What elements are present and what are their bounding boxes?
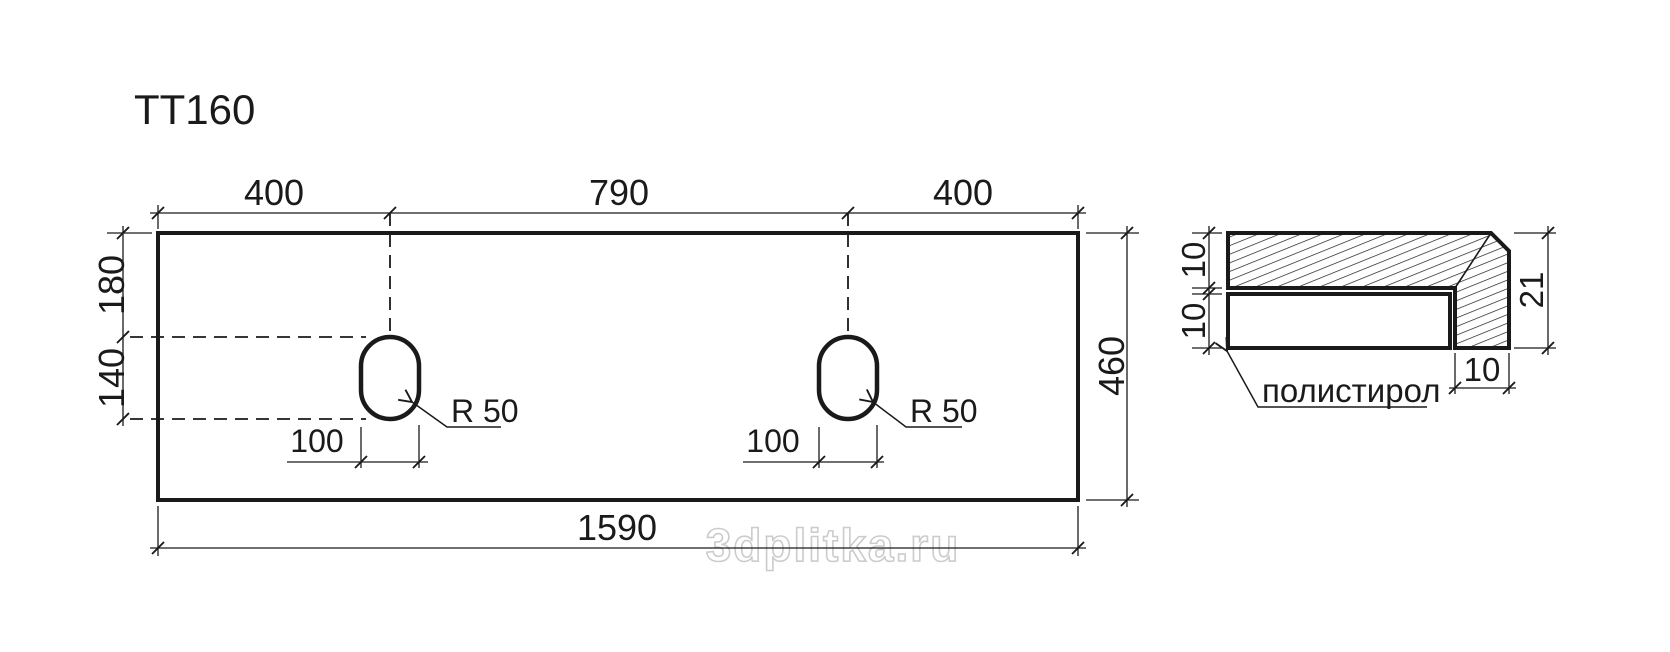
section-edge-width-label: 10 [1464, 351, 1501, 388]
drawing-page: 3dplitka.ru TT160 400 790 400 180 140 [0, 0, 1670, 652]
technical-drawing: 3dplitka.ru TT160 400 790 400 180 140 [0, 0, 1670, 652]
section-dim-bottom: 10 [1449, 351, 1516, 394]
section-total-height-label: 21 [1513, 272, 1550, 309]
section-material-callout: полистирол [1227, 351, 1440, 409]
hole-1-radius-label: R 50 [451, 393, 519, 429]
section-tile-thickness-label: 10 [1175, 242, 1212, 279]
dim-top-chain: 400 790 400 [150, 172, 1086, 229]
dim-left-lower-label: 140 [91, 348, 132, 408]
hole-2-radius-label: R 50 [910, 393, 978, 429]
dim-top-right-label: 400 [933, 172, 993, 213]
countertop-outline [158, 233, 1078, 500]
section-polystyrene-core [1228, 294, 1450, 348]
material-label: полистирол [1262, 372, 1440, 409]
dim-right: 460 [1086, 226, 1139, 507]
hole-1-width-label: 100 [290, 423, 343, 459]
section-core-thickness-label: 10 [1175, 303, 1212, 340]
dim-left-upper-label: 180 [91, 255, 132, 315]
hole-2-cutout [819, 337, 877, 419]
section-dim-left: 10 10 [1175, 226, 1222, 355]
section-view: 10 10 21 10 полистирол [1175, 226, 1556, 409]
hole-2-width-label: 100 [746, 423, 799, 459]
dim-left-chain: 180 140 [91, 226, 152, 426]
dim-top-middle-label: 790 [589, 172, 649, 213]
dim-bottom-label: 1590 [577, 507, 657, 548]
section-dim-right: 21 [1513, 226, 1556, 355]
dim-right-label: 460 [1091, 336, 1132, 396]
hole-1-cutout [361, 337, 419, 419]
plan-view: 400 790 400 180 140 460 1590 100 [91, 172, 1139, 556]
dim-top-left-label: 400 [244, 172, 304, 213]
drawing-title: TT160 [134, 86, 255, 133]
watermark-text: 3dplitka.ru [706, 519, 961, 571]
